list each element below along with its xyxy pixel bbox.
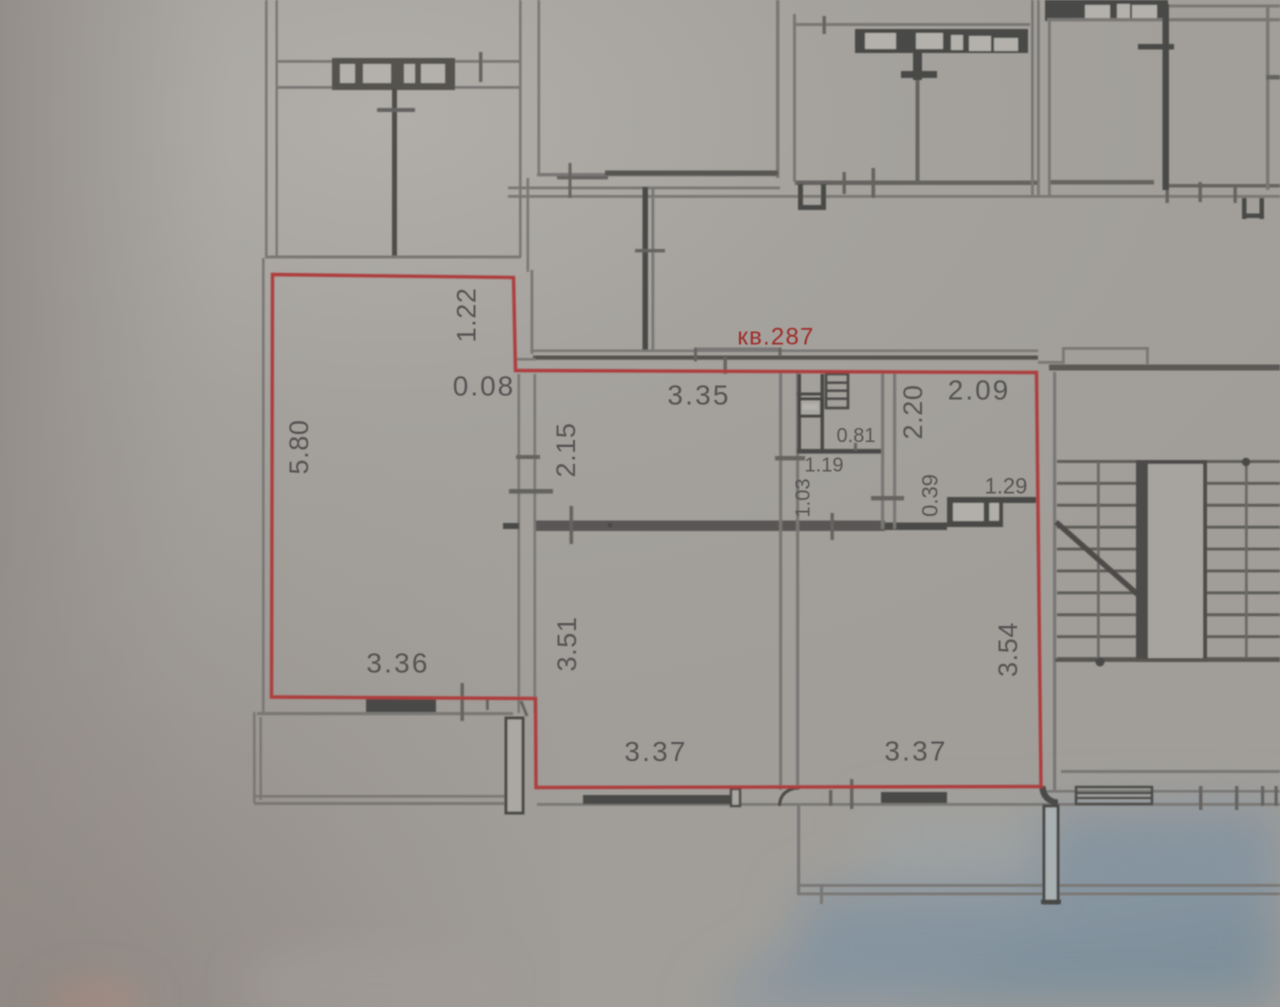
svg-text:1.03: 1.03 — [793, 479, 815, 518]
svg-text:1.22: 1.22 — [452, 288, 482, 343]
svg-text:0.81: 0.81 — [837, 425, 876, 447]
svg-text:3.35: 3.35 — [667, 380, 730, 411]
svg-text:3.37: 3.37 — [884, 736, 947, 767]
svg-text:2.09: 2.09 — [948, 375, 1011, 406]
svg-text:5.80: 5.80 — [284, 420, 314, 475]
svg-text:3.54: 3.54 — [993, 622, 1023, 677]
svg-text:2.20: 2.20 — [898, 385, 928, 440]
svg-text:3.51: 3.51 — [552, 617, 582, 672]
svg-text:1.19: 1.19 — [805, 455, 844, 477]
svg-text:0.39: 0.39 — [918, 474, 943, 517]
svg-text:2.15: 2.15 — [551, 423, 581, 478]
svg-text:3.37: 3.37 — [624, 736, 687, 767]
svg-text:1.29: 1.29 — [985, 474, 1028, 499]
svg-text:3.36: 3.36 — [366, 648, 429, 679]
svg-text:кв.287: кв.287 — [737, 324, 814, 351]
svg-text:0.08: 0.08 — [453, 371, 516, 402]
